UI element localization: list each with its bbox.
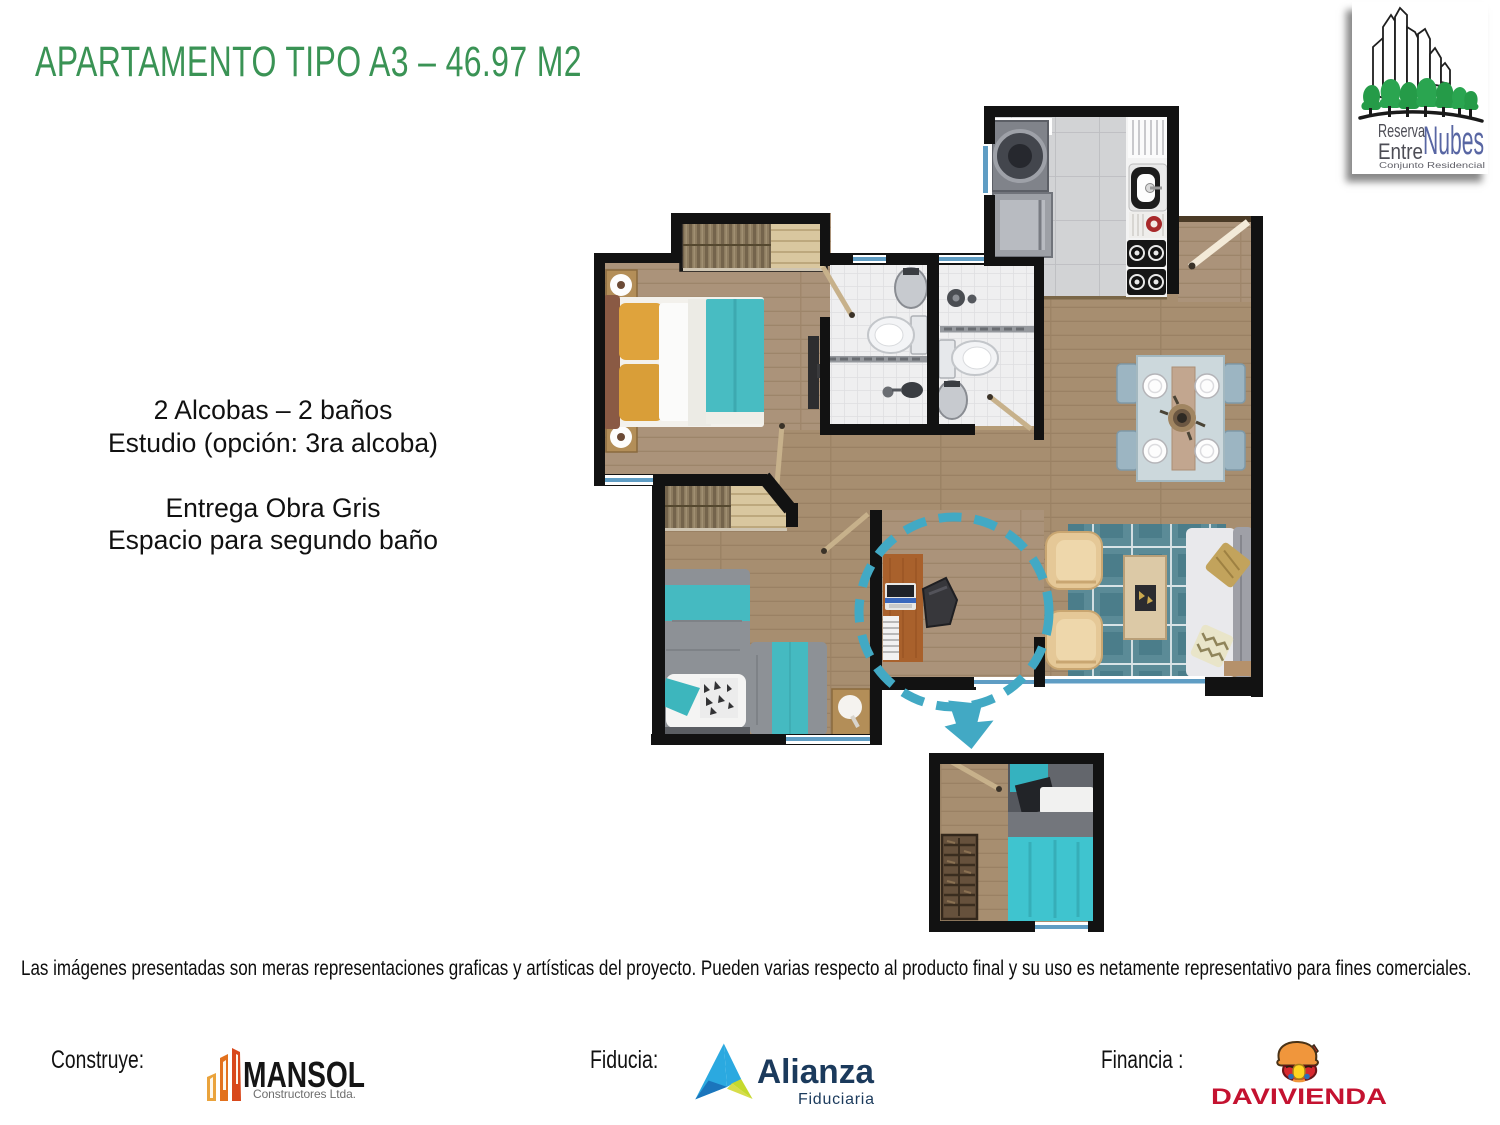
svg-text:Conjunto Residencial: Conjunto Residencial [1379,160,1485,170]
svg-text:Alianza: Alianza [757,1053,875,1091]
svg-text:DAVIVIENDA: DAVIVIENDA [1211,1084,1387,1109]
svg-text:Fiduciaria: Fiduciaria [798,1091,874,1108]
svg-text:Nubes: Nubes [1423,119,1484,163]
svg-text:Constructores Ltda.: Constructores Ltda. [253,1087,356,1101]
svg-text:Reserva: Reserva [1378,121,1426,141]
